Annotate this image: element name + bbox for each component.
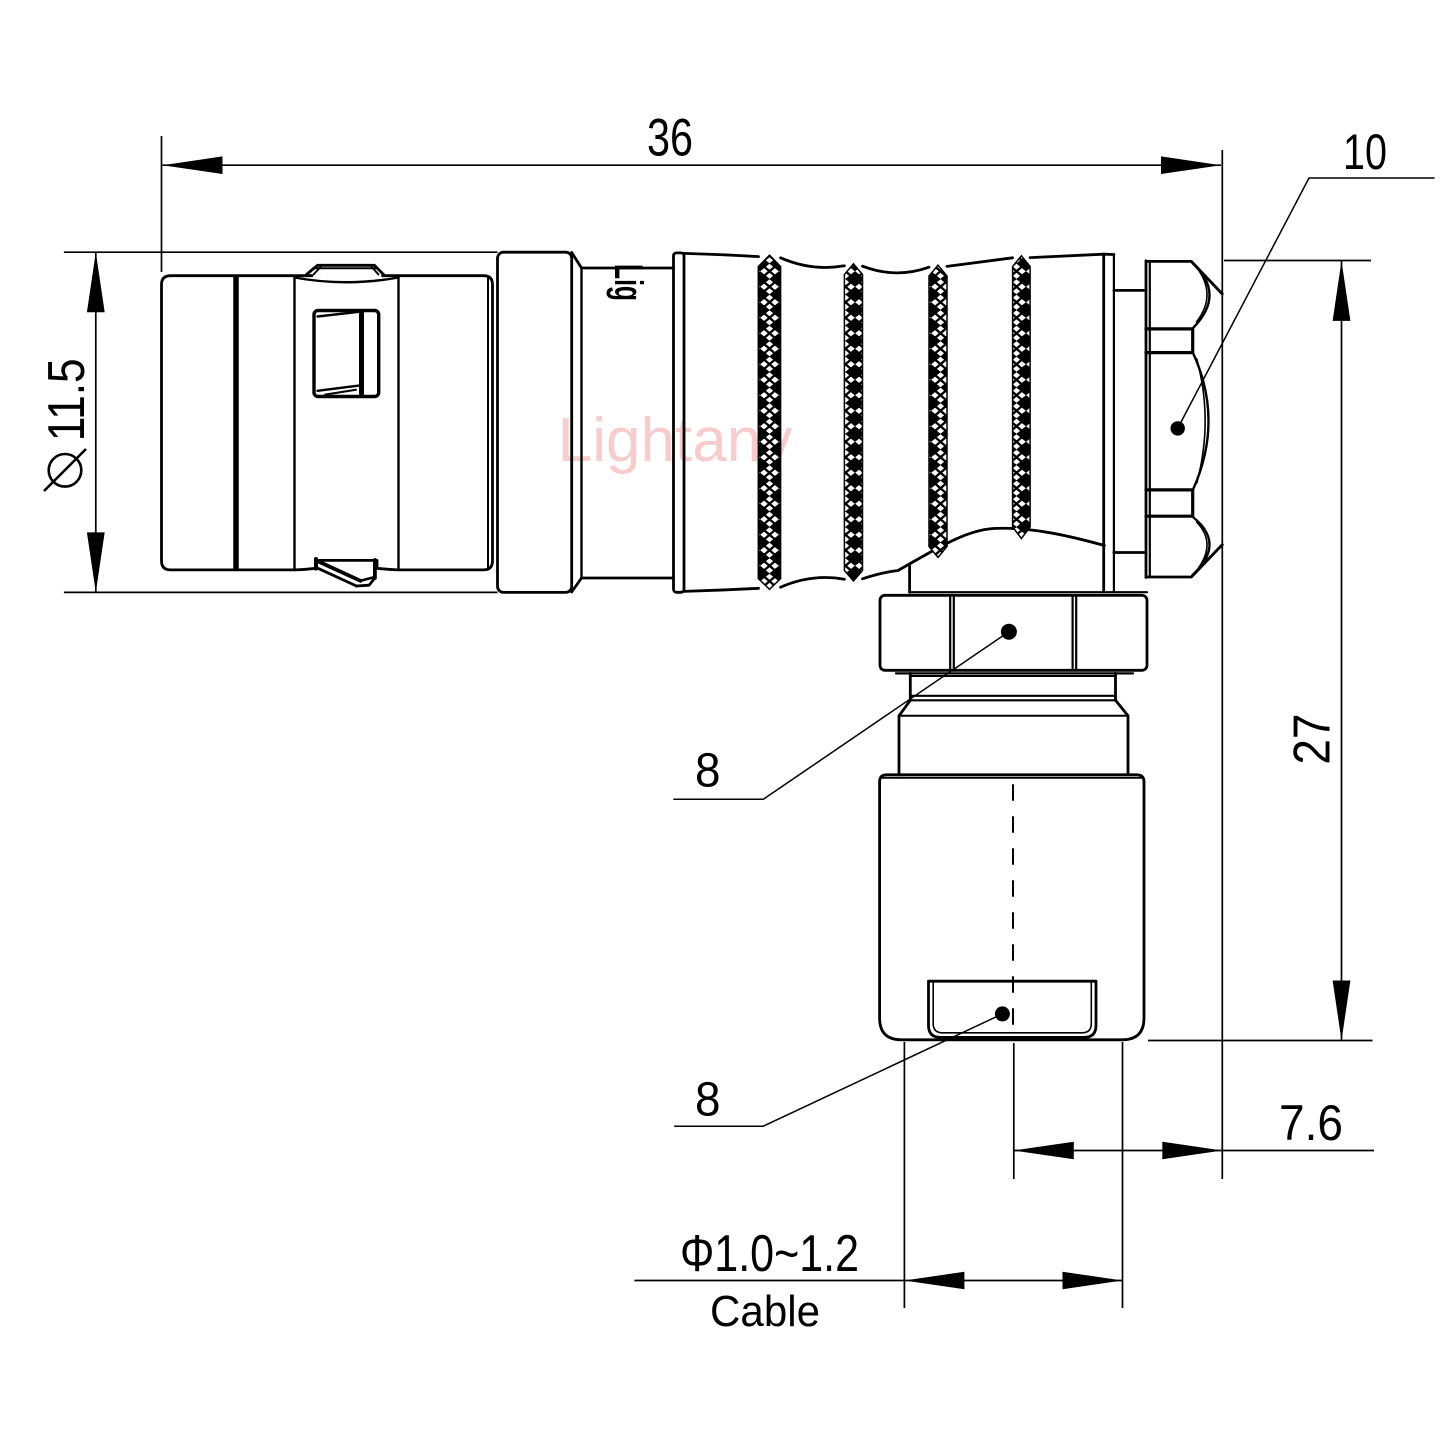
svg-text:8: 8 (695, 745, 721, 798)
svg-text:8: 8 (695, 1074, 721, 1127)
svg-text:Cable: Cable (710, 1287, 820, 1336)
svg-text:36: 36 (647, 109, 693, 168)
svg-text:Lig: Lig (606, 264, 650, 301)
svg-text:7.6: 7.6 (1279, 1095, 1343, 1151)
svg-text:27: 27 (1284, 714, 1342, 765)
svg-text:Φ1.0~1.2: Φ1.0~1.2 (680, 1225, 859, 1283)
svg-text:Lightany: Lightany (558, 406, 792, 475)
svg-text:11.5: 11.5 (38, 358, 96, 441)
svg-text:10: 10 (1343, 124, 1387, 180)
